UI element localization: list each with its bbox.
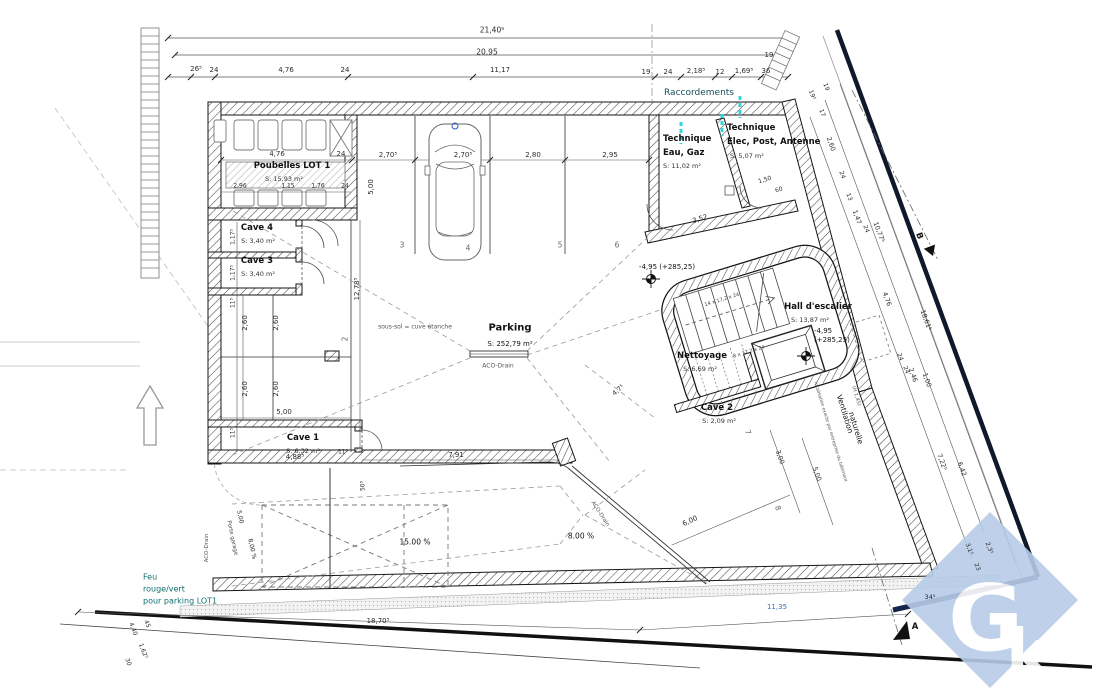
sous-sol-note: sous-sol = cuve étanche [378, 324, 452, 331]
slope-main-label: 15.00 % [400, 538, 431, 547]
dim-label: 2,60 [272, 315, 280, 331]
dim-label: 24 [837, 170, 846, 180]
dim-label: 19⁵ [807, 89, 817, 101]
dim-label: 1,00 [921, 372, 933, 388]
dim-label: 1,17⁵ [230, 265, 237, 281]
dim-label: 11⁵ [338, 449, 348, 456]
slope-secondary-label: 8.00 % [568, 532, 594, 541]
dim-label: 24 [337, 150, 346, 158]
room-label-hall: Hall d'escalier [784, 302, 852, 312]
dim-label: 1,69⁵ [735, 67, 753, 75]
dim-label: 7,22⁵ [935, 453, 948, 472]
feu-note-line3: pour parking LOT1 [143, 597, 217, 606]
room-area-cave2: S: 2,09 m² [702, 417, 736, 425]
dim-label: 4,76 [269, 150, 285, 158]
aco-drain-label-left: ACO-Drain [204, 534, 210, 563]
dim-label: 2,60 [241, 315, 249, 331]
parking-stall-number: 6 [615, 241, 620, 250]
section-label-b: B [913, 231, 925, 241]
level-label-right-1: -4,95 [814, 327, 832, 335]
dim-label: 36 [762, 67, 771, 75]
section-label-a: A [912, 622, 919, 632]
dim-label: 50⁵ [360, 481, 367, 491]
room-label-technique-elec-1: Technique [727, 123, 775, 133]
dim-label: 23 [972, 562, 981, 572]
dim-label: 20,95 [476, 48, 497, 57]
room-label-technique-eau-2: Eau, Gaz [663, 148, 704, 158]
stair-upper-text: 14 x 17,2 x 24 [704, 292, 740, 308]
dim-label: 19 [821, 82, 830, 92]
dim-label: 2,18⁵ [687, 67, 705, 75]
dim-label: 1,76 [311, 183, 324, 190]
dim-label: 3,1⁵ [964, 542, 975, 556]
aco-drain-label-center: ACO-Drain [482, 363, 513, 370]
parking-stall-number: 7 [743, 428, 753, 436]
room-area-cave4: S: 3,40 m² [241, 237, 275, 245]
hauteur-note: (H 1,45) [850, 385, 862, 406]
dim-label: 12 [716, 68, 725, 76]
dim-label: 1,47 [851, 209, 863, 225]
dim-label: 24 [341, 183, 349, 190]
aco-drain-label-ramp: ACO-Drain [590, 500, 611, 527]
dim-label: 4,88⁵ [286, 453, 304, 461]
dim-label: 2,60 [241, 381, 249, 397]
dim-label: 2,80 [525, 151, 541, 159]
dim-label: 6,00 [681, 514, 699, 528]
floor-plan-page: G k Poubelles LOT 1 S: 15,93 m² Cave 4 S… [0, 0, 1093, 699]
dim-label: 3,52 [691, 213, 708, 225]
dim-label: 11⁵ [230, 298, 237, 308]
dim-label: 2,70⁵ [379, 151, 397, 159]
dim-label: 2,95 [602, 151, 618, 159]
dim-label: 17 [817, 108, 826, 118]
dim-label: 4,76 [278, 66, 294, 74]
dim-label: 30 [123, 657, 132, 667]
dim-label: 45 [142, 619, 151, 629]
dim-label: 26⁵ [190, 65, 202, 73]
dim-label: 19 [642, 68, 651, 76]
dim-label: 2,96 [233, 183, 246, 190]
level-label-left: -4,95 (+285,25) [639, 263, 695, 271]
parking-stall-number: 8 [773, 504, 783, 512]
level-label-right-2: (+285,25) [814, 336, 850, 344]
room-label-technique-elec-2: Elec, Post, Antenne [727, 137, 820, 147]
dim-label: 11,35 [767, 603, 787, 611]
dim-label: 3,00 [774, 449, 786, 465]
dim-label: 2,60 [825, 136, 837, 152]
parking-stall-number: 4 [466, 244, 471, 253]
room-area-technique-elec: S: 5,07 m² [730, 152, 764, 160]
porte-garage-label: Porte garage [225, 520, 238, 556]
dim-label: 7,91 [448, 451, 464, 459]
room-area-parking: S: 252,79 m² [487, 340, 532, 348]
dim-label: 4,40 [127, 622, 138, 637]
dim-label: 24 [664, 68, 673, 76]
parking-stall-number: 5 [558, 241, 563, 250]
room-label-cave4: Cave 4 [241, 223, 273, 233]
dim-label: 24 [895, 352, 904, 362]
dim-label: 1,17⁵ [230, 229, 237, 245]
room-area-cave3: S: 3,40 m² [241, 270, 275, 278]
dim-label: 5,00 [235, 510, 245, 525]
dim-label: 13 [844, 192, 853, 202]
room-label-technique-eau-1: Technique [663, 134, 711, 144]
dim-label: 19 [765, 51, 774, 59]
raccordements-label: Raccordements [664, 88, 734, 98]
dim-label: 24 [210, 66, 219, 74]
stair-lower-text: 8 x 17,2 x 24 [732, 344, 765, 359]
dim-label: 21,40⁵ [480, 26, 504, 35]
room-label-cave3: Cave 3 [241, 256, 273, 266]
room-label-nettoyage: Nettoyage [677, 351, 727, 361]
dim-label: 4,76 [881, 291, 893, 307]
room-label-poubelles: Poubelles LOT 1 [254, 161, 331, 171]
dim-label: 6,42 [956, 461, 968, 477]
room-label-cave1: Cave 1 [287, 433, 319, 443]
dim-label: 1,50 [758, 175, 773, 186]
parking-stall-number: 2 [341, 337, 350, 342]
room-area-nettoyage: S: 6,69 m² [683, 365, 717, 373]
feu-note-line1: Feu [143, 573, 157, 582]
room-area-technique-eau: S: 11,02 m² [663, 162, 701, 170]
feu-note-line2: rouge/vert [143, 585, 185, 594]
dim-label: 5,00 [811, 466, 823, 482]
room-label-cave2: Cave 2 [701, 403, 733, 413]
dim-label: 12,78⁵ [353, 278, 361, 301]
dim-label: 24 [861, 224, 870, 234]
room-label-parking: Parking [488, 323, 531, 334]
dim-label: 8,00 % [246, 538, 257, 560]
dim-label: 18,61⁵ [919, 309, 934, 332]
dim-label: 2,46 [907, 367, 919, 383]
dim-label: 2,3⁵ [984, 541, 995, 555]
dim-label: 18,70⁵ [367, 617, 390, 625]
parking-stall-number: 3 [400, 241, 405, 250]
label-overlay: Poubelles LOT 1 S: 15,93 m² Cave 4 S: 3,… [0, 0, 1093, 699]
dim-label: 34⁵ [925, 593, 936, 601]
dim-label: 5,00 [367, 179, 375, 195]
dim-label: 10,77⁵ [872, 221, 887, 244]
dim-label: 2,60 [272, 381, 280, 397]
dim-label: 4,7⁵ [610, 383, 625, 397]
dim-label: 11,17 [490, 66, 510, 74]
dim-label: 11⁵ [230, 428, 237, 438]
dim-label: 2,70⁵ [454, 151, 472, 159]
dim-label: 24 [341, 66, 350, 74]
dim-label: 60 [774, 186, 783, 195]
dim-label: 5,00 [276, 408, 292, 416]
room-area-hall: S: 13,87 m² [791, 316, 829, 324]
dim-label: 1,15 [281, 183, 294, 190]
dim-label: 1,62⁵ [137, 642, 149, 659]
